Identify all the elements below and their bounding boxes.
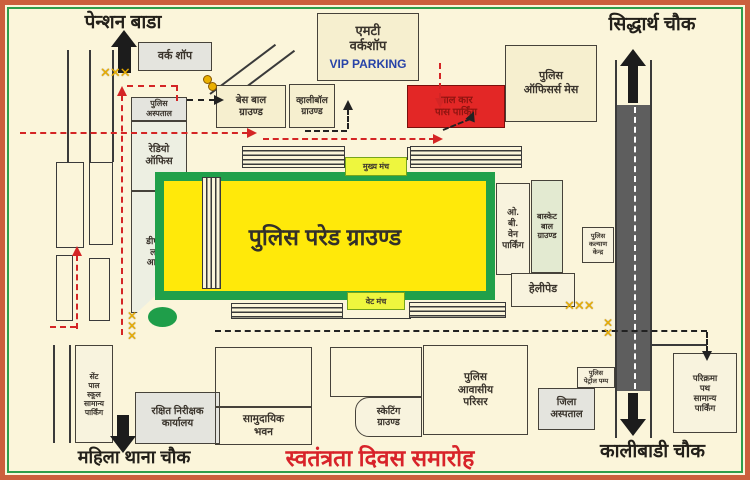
building-police-residential: पुलिस आवासीय परिसर bbox=[423, 345, 528, 435]
bleacher-stand bbox=[409, 302, 506, 318]
road-arrow-up-shaft bbox=[628, 65, 638, 103]
building-unlabeled bbox=[215, 347, 312, 407]
route-red-arrow-icon bbox=[435, 98, 445, 108]
route-black-dashed bbox=[215, 330, 707, 332]
street-line bbox=[89, 50, 91, 162]
city-block bbox=[89, 162, 113, 245]
building-police-hospital: पुलिस अस्पताल bbox=[131, 97, 187, 121]
building-ob-van-parking: ओ. बी. वेन पार्किंग bbox=[496, 183, 530, 275]
road-center-line bbox=[634, 107, 636, 389]
rail-crossing-icon: ✕ ✕ bbox=[603, 318, 612, 338]
street-line bbox=[53, 345, 55, 443]
label-kalibadi-chowk: कालीबाडी चौक bbox=[580, 442, 725, 463]
building-district-hospital: जिला अस्पताल bbox=[538, 388, 595, 430]
route-red-dashed bbox=[76, 255, 78, 329]
building-rakshit-inspector-office: रक्षित निरीक्षक कार्यालय bbox=[135, 392, 220, 444]
route-black-dashed bbox=[187, 99, 215, 101]
building-basket-ball-ground: बास्केट बाल ग्राउण्ड bbox=[531, 180, 563, 273]
site-map: पेन्शन बाडा सिद्धार्थ चौक महिला थाना चौक… bbox=[0, 0, 750, 480]
vet-stage-label: वेट मंच bbox=[347, 292, 405, 310]
route-red-dashed bbox=[176, 85, 178, 101]
label-pension-bada: पेन्शन बाडा bbox=[53, 13, 193, 34]
rail-crossing-icon: ✕✕✕ bbox=[100, 67, 130, 78]
bleacher-stand bbox=[242, 146, 345, 168]
route-black-arrow-icon bbox=[214, 95, 224, 105]
route-red-arrow-icon bbox=[247, 128, 257, 138]
event-title: स्वतंत्रता दिवस समारोह bbox=[245, 446, 515, 471]
bleacher-stand bbox=[202, 177, 221, 289]
rail-crossing-icon: ✕ ✕ ✕ bbox=[127, 311, 136, 342]
city-block bbox=[56, 162, 84, 248]
route-red-dashed bbox=[121, 95, 123, 335]
mahila-arrow-shaft bbox=[117, 415, 129, 438]
route-red-dashed bbox=[20, 132, 248, 134]
city-block bbox=[56, 255, 73, 321]
route-red-dashed bbox=[439, 63, 441, 99]
rail-crossing-icon: ✕✕✕ bbox=[564, 300, 594, 311]
building-red-car-pass-parking: लाल कार पास पार्किंग bbox=[407, 85, 505, 128]
route-black-arrow-icon bbox=[702, 351, 712, 361]
bleacher-stand bbox=[231, 303, 343, 319]
route-red-dashed bbox=[50, 326, 76, 328]
building-mt-workshop: एमटी वर्कशॉप VIP PARKING bbox=[317, 13, 419, 81]
building-work-shop: वर्क शॉप bbox=[138, 42, 212, 71]
route-red-arrow-icon bbox=[117, 86, 127, 96]
building-community-hall: सामुदायिक भवन bbox=[215, 407, 312, 445]
bleacher-stand bbox=[410, 146, 522, 168]
mt-workshop-label: एमटी वर्कशॉप bbox=[350, 23, 387, 54]
road-arrow-down-icon bbox=[620, 419, 646, 436]
green-island bbox=[148, 307, 177, 327]
building-parikrama-parking: परिक्रमा पथ सामान्य पार्किंग bbox=[673, 353, 737, 433]
route-black-dashed bbox=[305, 130, 347, 132]
road-arrow-up-icon bbox=[620, 49, 646, 66]
route-black-dashed bbox=[706, 332, 708, 352]
label-siddharth-chowk: सिद्धार्थ चौक bbox=[577, 15, 727, 36]
road-arrow-down-shaft bbox=[628, 393, 638, 421]
building-st-paul-parking: सेंट पाल स्कूल सामान्य पार्किंग bbox=[75, 345, 113, 443]
street-line bbox=[67, 50, 69, 162]
road-edge-right bbox=[650, 60, 652, 438]
building-base-ball-ground: बेस बाल ग्राउण्ड bbox=[216, 85, 286, 128]
building-police-officers-mess: पुलिस ऑफिसर्स मेस bbox=[505, 45, 597, 122]
label-mahila-thana-chowk: महिला थाना चौक bbox=[49, 448, 219, 468]
building-unlabeled bbox=[330, 347, 422, 397]
road-branch-line bbox=[651, 344, 707, 346]
vip-parking-label: VIP PARKING bbox=[330, 57, 407, 71]
street-line bbox=[69, 345, 71, 443]
crossing-bead-icon bbox=[208, 82, 217, 91]
route-black-arrow-icon bbox=[343, 100, 353, 110]
route-red-arrow-icon bbox=[433, 134, 443, 144]
route-red-dashed bbox=[127, 85, 177, 87]
route-black-dashed bbox=[347, 109, 349, 129]
route-red-dashed bbox=[263, 138, 435, 140]
main-stage-label: मुख्य मंच bbox=[345, 157, 407, 176]
main-road bbox=[617, 105, 650, 391]
building-skating-ground: स्केटिंग ग्राउण्ड bbox=[355, 397, 422, 437]
building-police-petrol-pump: पुलिस पेट्रोल पम्प bbox=[577, 367, 615, 388]
city-block bbox=[89, 258, 110, 321]
building-volleyball-ground: व्हालीबॉल ग्राउण्ड bbox=[289, 84, 335, 128]
route-red-arrow-icon bbox=[72, 246, 82, 256]
building-police-welfare-center: पुलिस कल्याण केन्द्र bbox=[582, 227, 614, 263]
